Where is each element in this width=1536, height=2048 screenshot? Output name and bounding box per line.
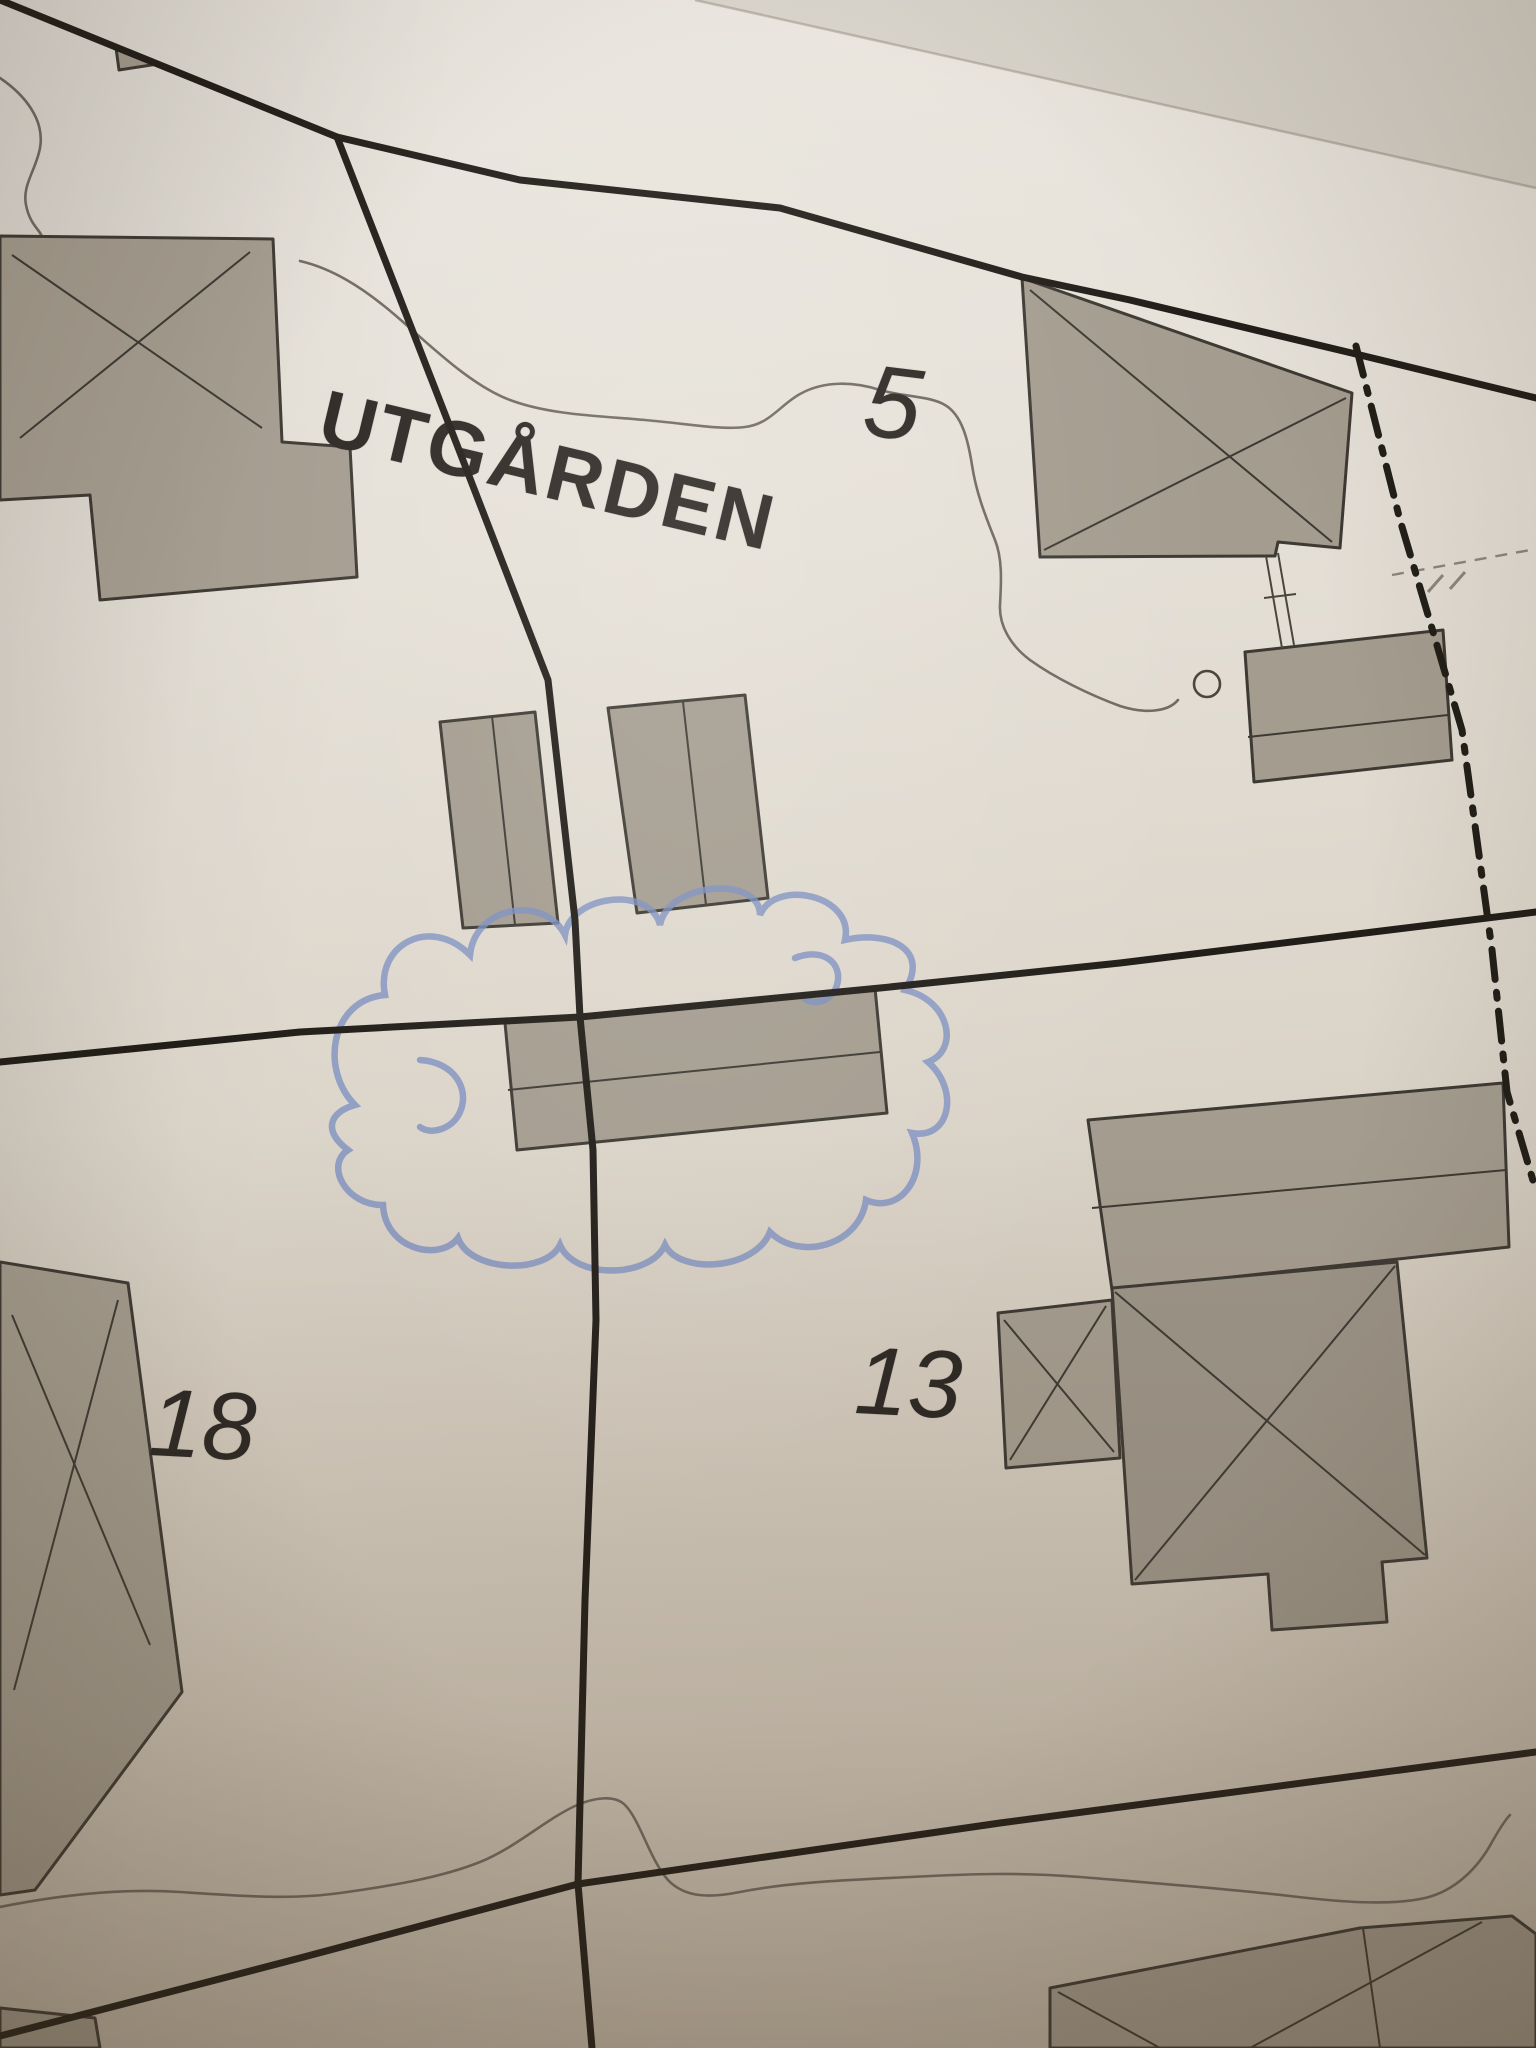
boundary-middle (0, 912, 1536, 1062)
boundary-dash-dot (1356, 346, 1534, 1184)
property-boundaries (0, 0, 1536, 2048)
boundary-top (0, 0, 1536, 398)
boundary-bottom (0, 1752, 1536, 2036)
map-photo: UTGÅRDEN 5 18 13 (0, 0, 1536, 2048)
boundary-vertical (337, 137, 596, 2048)
